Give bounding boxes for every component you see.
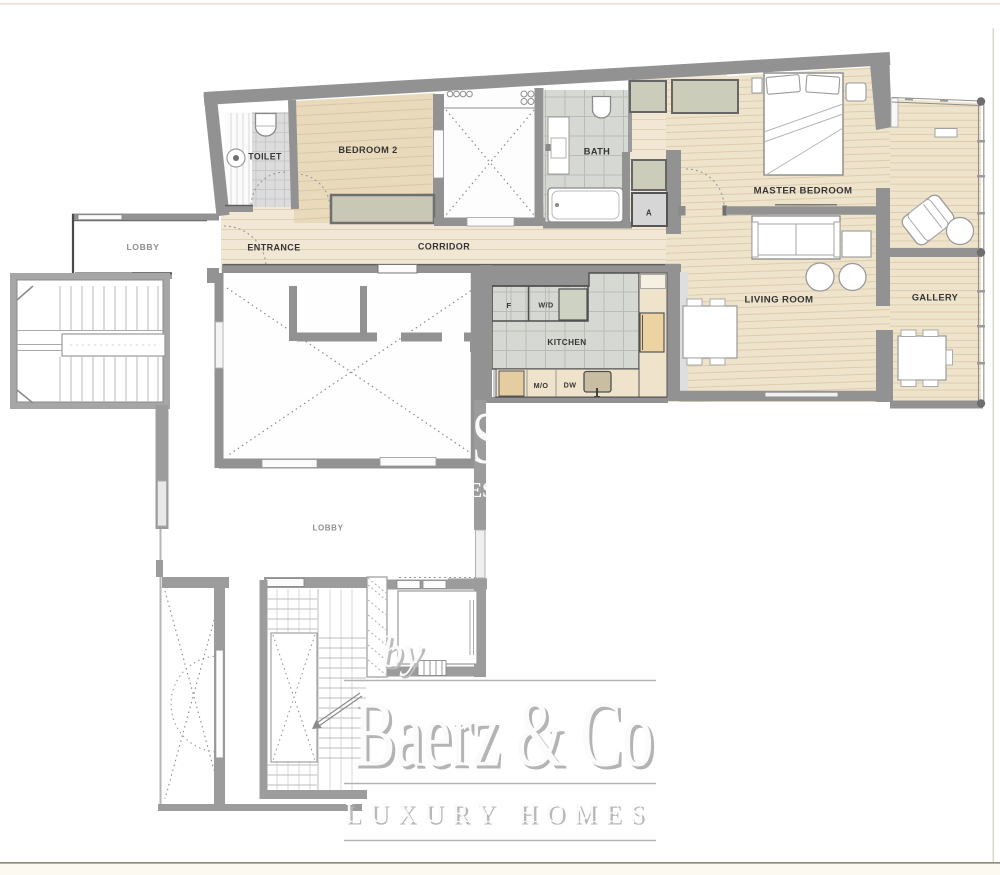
svg-text:A: A <box>646 209 652 218</box>
svg-text:LOBBY: LOBBY <box>126 242 159 252</box>
svg-text:S: S <box>472 398 499 480</box>
svg-text:LIVING ROOM: LIVING ROOM <box>745 295 814 306</box>
svg-text:MASTER BEDROOM: MASTER BEDROOM <box>754 186 853 197</box>
svg-text:F: F <box>506 301 511 310</box>
svg-text:by: by <box>381 628 423 677</box>
svg-text:ENTRANCE: ENTRANCE <box>247 243 300 253</box>
svg-text:M/O: M/O <box>534 381 549 390</box>
svg-text:W/D: W/D <box>538 301 553 310</box>
svg-text:LUXURY HOMES: LUXURY HOMES <box>345 798 653 828</box>
svg-text:DW: DW <box>564 381 577 390</box>
svg-text:LOBBY: LOBBY <box>313 524 344 533</box>
svg-text:ES: ES <box>468 478 494 502</box>
svg-text:GALLERY: GALLERY <box>912 293 958 303</box>
svg-text:TOILET: TOILET <box>248 152 282 162</box>
svg-text:BATH: BATH <box>584 147 610 157</box>
svg-text:BEDROOM 2: BEDROOM 2 <box>338 145 397 155</box>
svg-text:CORRIDOR: CORRIDOR <box>418 242 470 252</box>
svg-text:KITCHEN: KITCHEN <box>547 338 586 347</box>
svg-text:Baerz & Co: Baerz & Co <box>354 683 654 787</box>
